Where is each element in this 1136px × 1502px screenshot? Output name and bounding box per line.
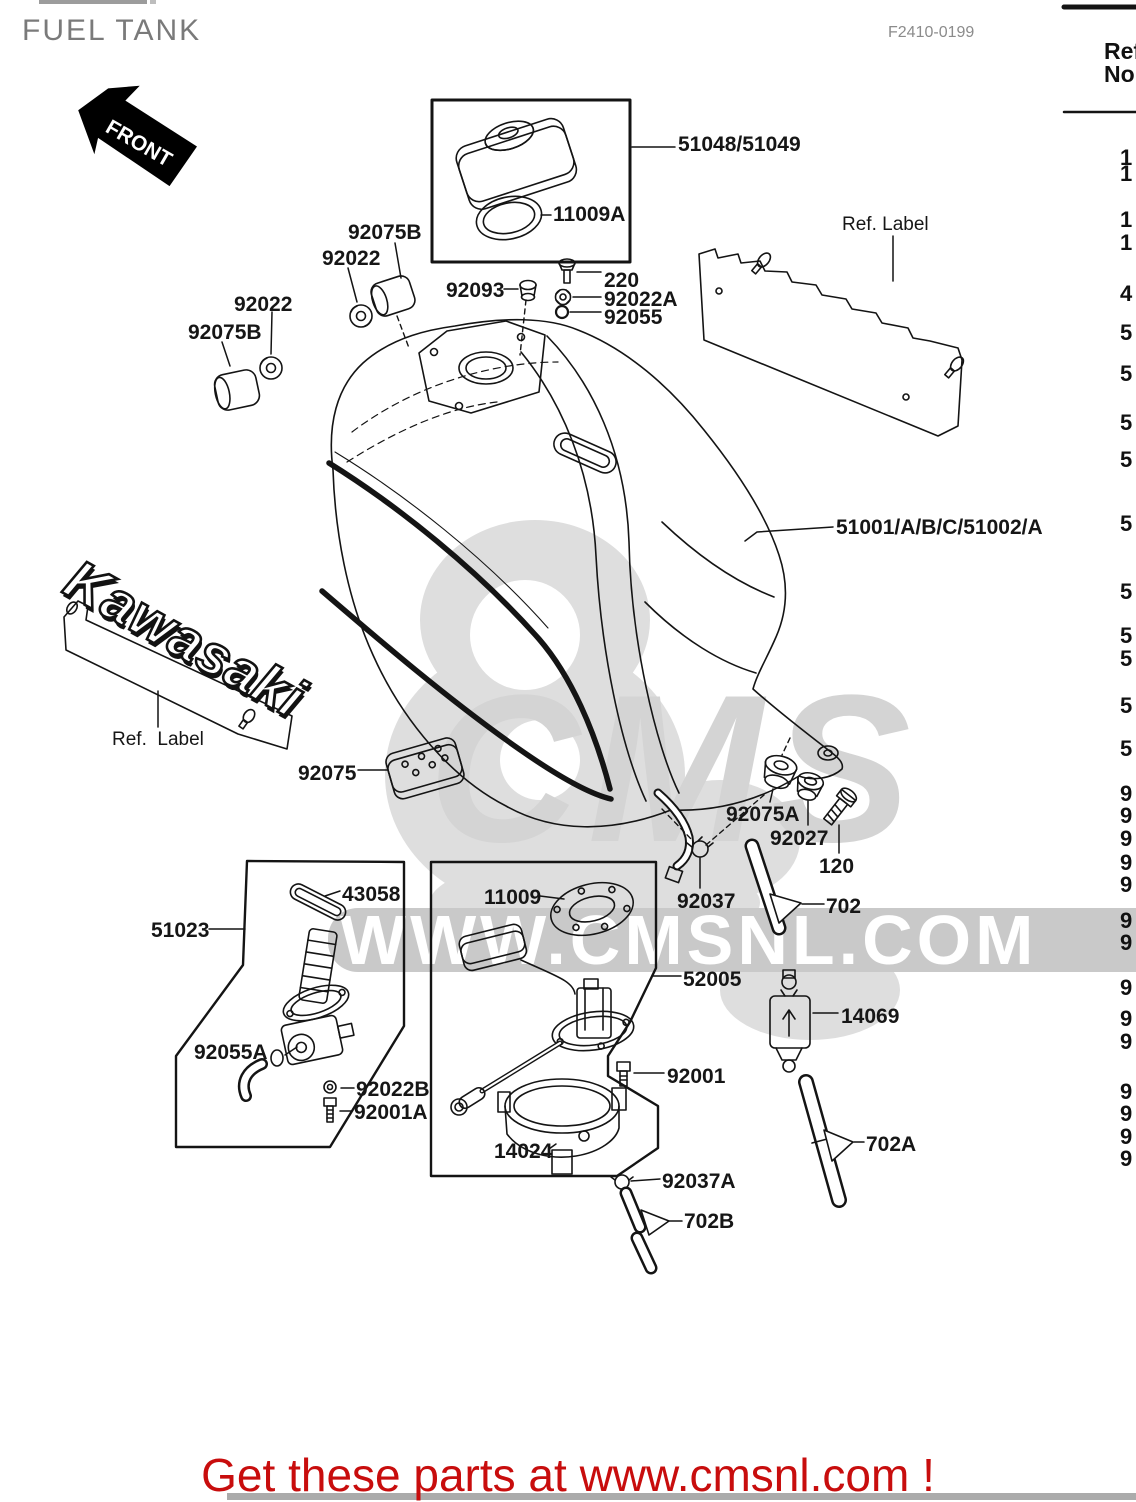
grommet-92027-drawing [793,770,825,803]
part-label-92001a: 92001A [354,1101,428,1125]
ref-header-line2: No. [1104,61,1136,86]
part-label-51048-51049: 51048/51049 [678,133,801,157]
grommet-92075a-drawing [760,752,799,791]
part-label-92075b: 92075B [188,321,262,345]
damper-92075b-left-drawing [212,368,262,412]
part-label-92093: 92093 [446,279,504,303]
part-label-92075: 92075 [298,762,356,786]
part-label-14069: 14069 [841,1005,899,1029]
ref-no-digit: 9 [1120,975,1132,1001]
ref-no-digit: 5 [1120,579,1132,605]
ref-no-digit: 5 [1120,646,1132,672]
ref-no-column-header: Ref.No. [1104,40,1136,86]
ref-no-digit: 9 [1120,872,1132,898]
ref-no-digit: 4 [1120,281,1132,307]
part-label-ref-label: Ref. Label [112,729,204,751]
filter-14069-drawing [770,970,810,1072]
washer-92022-upper-drawing [350,305,372,327]
part-label-92022: 92022 [234,293,292,317]
ref-no-digit: 1 [1120,161,1132,187]
sender-body-drawing [577,979,611,1038]
ref-no-digit: 5 [1120,693,1132,719]
petcock-flange-drawing [279,978,353,1028]
fuel-gauge-box-drawing [431,862,658,1176]
cap-gasket-drawing [472,191,545,246]
ref-no-digit: 5 [1120,410,1132,436]
part-label-51001-a-b-c-51002-a: 51001/A/B/C/51002/A [836,516,1043,540]
ref-no-digit: 1 [1120,230,1132,256]
bolt-92001a-drawing [324,1098,336,1122]
part-label-702a: 702A [866,1133,916,1157]
washer-92022b-drawing [324,1081,336,1093]
bolt-120-drawing [821,785,859,827]
part-label-92022: 92022 [322,247,380,271]
ref-no-digit: 5 [1120,320,1132,346]
front-arrow-badge: FRONT [63,65,209,197]
part-label-92055: 92055 [604,306,662,330]
ref-no-digit: 5 [1120,361,1132,387]
part-label-702b: 702B [684,1210,734,1234]
ref-no-digit: 9 [1120,930,1132,956]
footer-banner: Get these parts at www.cmsnl.com ! [0,1448,1136,1502]
ref-no-digit: 5 [1120,736,1132,762]
part-label-92037: 92037 [677,890,735,914]
ref-no-digit: 9 [1120,1029,1132,1055]
ref-no-digit: 9 [1120,826,1132,852]
damper-92075b-upper-drawing [368,274,417,319]
grommet-92093-drawing [520,281,536,301]
float-drawing [458,923,529,972]
ref-label-plate-drawing [699,249,966,436]
part-label-92027: 92027 [770,827,828,851]
nut-92022a-drawing [556,290,571,305]
part-label-51023: 51023 [151,919,209,943]
part-label-92037a: 92037A [662,1170,736,1194]
part-label-92022b: 92022B [356,1078,430,1102]
part-label-92055a: 92055A [194,1041,268,1065]
oring-92055a-drawing [271,1050,283,1066]
slot-43058-drawing [288,881,349,922]
construction-dashes [397,300,790,845]
part-label-92001: 92001 [667,1065,725,1089]
ref-no-digit: 5 [1120,447,1132,473]
part-label-702: 702 [826,895,861,919]
oring-92055-drawing [556,306,568,318]
part-label-120: 120 [819,855,854,879]
fuel-cap-box [432,100,630,262]
arrow-702b [641,1210,669,1235]
gasket-11009-drawing [545,875,639,944]
parts-fiche-page: { "header": { "title": "FUEL TANK", "fic… [0,0,1136,1500]
ref-no-digit: 5 [1120,511,1132,537]
part-label-92075b: 92075B [348,221,422,245]
part-label-ref-label: Ref. Label [842,214,929,236]
part-label-92075a: 92075A [726,803,800,827]
part-label-52005: 52005 [683,968,741,992]
part-label-43058: 43058 [342,883,400,907]
part-label-14024: 14024 [494,1140,552,1164]
washer-92022-left-drawing [260,357,282,379]
part-label-11009a: 11009A [553,203,625,227]
ref-no-digit: 9 [1120,1146,1132,1172]
part-label-11009: 11009 [484,886,541,910]
